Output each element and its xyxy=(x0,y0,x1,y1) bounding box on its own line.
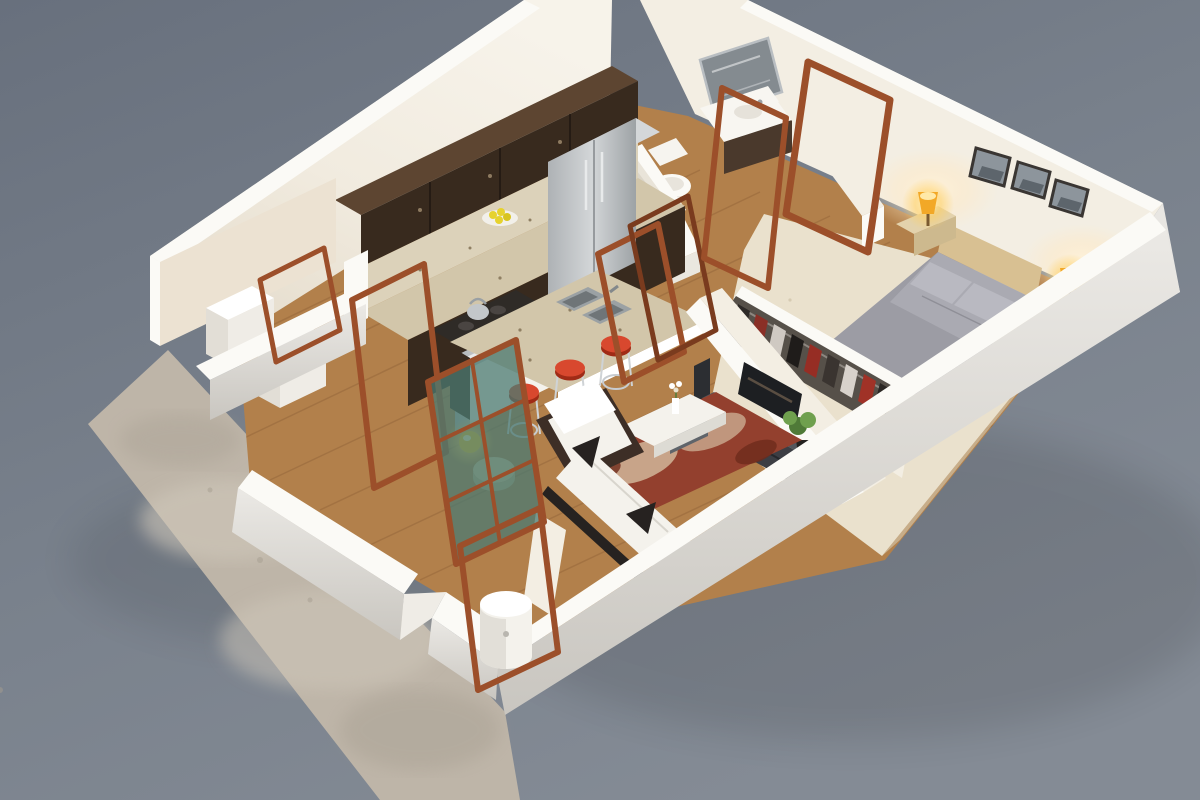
plant-foliage xyxy=(800,412,816,428)
patio-speck xyxy=(308,598,313,603)
kettle xyxy=(467,304,489,320)
granite-speck xyxy=(529,219,532,222)
cabinet-knob xyxy=(418,208,422,212)
granite-speck xyxy=(498,276,501,279)
cylinder-bin-lid xyxy=(480,591,532,617)
stool-seat xyxy=(555,360,585,377)
granite-speck xyxy=(518,328,521,331)
granite-speck xyxy=(469,247,472,250)
floorplan-svg xyxy=(0,0,1200,800)
west-end-wall xyxy=(150,256,160,346)
lamp-hotspot xyxy=(920,192,936,200)
patio-speck xyxy=(208,488,213,493)
burner xyxy=(490,306,506,315)
vase xyxy=(672,398,679,414)
burner xyxy=(458,322,474,331)
patio-texture xyxy=(340,690,500,770)
bin-button xyxy=(503,631,509,637)
lemon xyxy=(503,213,511,221)
flower xyxy=(674,388,679,393)
table-lamp-left xyxy=(902,178,954,230)
granite-speck xyxy=(618,328,621,331)
patio-speck xyxy=(257,557,263,563)
lemon xyxy=(495,216,503,224)
carpet-speck xyxy=(788,298,791,301)
floorplan-render xyxy=(0,0,1200,800)
granite-speck xyxy=(528,358,531,361)
flower xyxy=(676,381,682,387)
cabinet-knob xyxy=(488,174,492,178)
flower xyxy=(669,383,675,389)
plant-foliage xyxy=(783,411,797,425)
patio-texture xyxy=(120,414,240,466)
cabinet-knob xyxy=(558,140,562,144)
